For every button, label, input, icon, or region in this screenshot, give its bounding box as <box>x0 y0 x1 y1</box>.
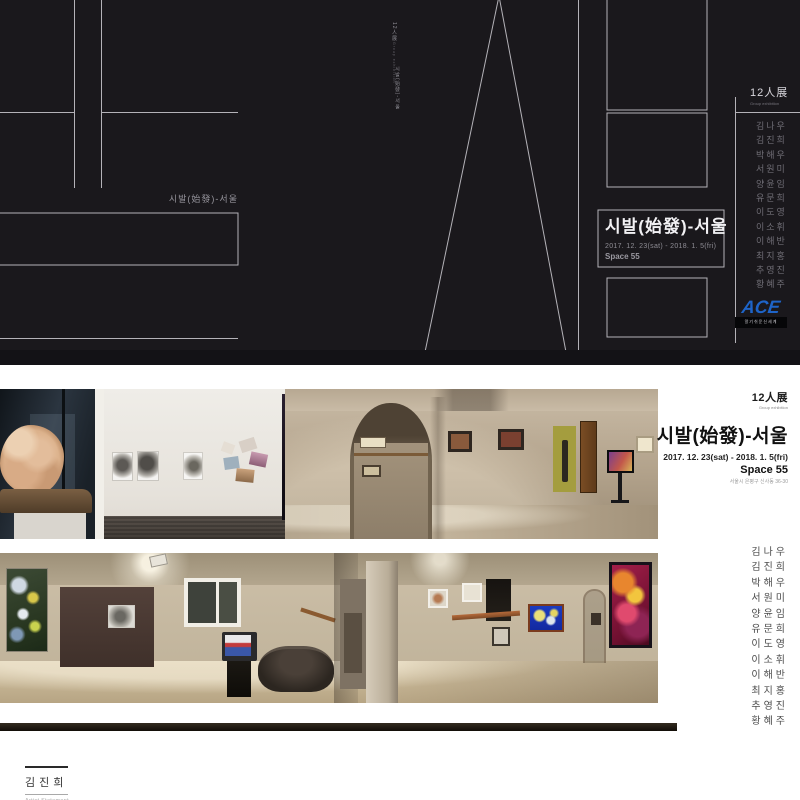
photo-floral-painting-left <box>6 568 48 652</box>
divider-thin <box>25 794 68 795</box>
photo-framed-photo-2 <box>498 429 524 450</box>
poster-vertical-title: 시발(始發)-서울 <box>394 66 401 110</box>
photo-window <box>184 578 241 627</box>
photo-ceiling <box>0 553 658 585</box>
artist-name: 이도영 <box>751 637 788 652</box>
photo-copper-pipe <box>300 608 335 623</box>
photo-red-floral-painting <box>609 562 652 648</box>
poster-bottom-band <box>0 350 800 365</box>
photo-concrete-ceiling <box>285 389 658 411</box>
artist-name-list: 김나우김진희박해우서원미양윤임유문희이도영이소휘이해반최지홍추영진황혜주 <box>751 545 788 730</box>
photo-tv-pedestal <box>227 661 251 697</box>
info-venue: Space 55 <box>638 464 788 476</box>
artist-name: 유문희 <box>751 622 788 637</box>
photo-brown-wall <box>60 587 154 667</box>
ace-logo-text: ACE <box>734 297 789 317</box>
info-date-range: 2017. 12. 23(sat) - 2018. 1. 5(fri) <box>638 452 788 462</box>
photo-sculpture <box>0 425 64 495</box>
artist-name: 양윤임 <box>751 607 788 622</box>
artist-name: 이소휘 <box>751 653 788 668</box>
photo-arch-niche <box>583 589 606 663</box>
photo-corridor-doorway <box>344 613 362 673</box>
gallery-panorama-top[interactable] <box>0 389 658 539</box>
photo-wall-corner-shadow <box>430 397 446 539</box>
info-title: 시발(始發)-서울 <box>638 421 788 448</box>
artist-name: 황혜주 <box>751 714 788 729</box>
photo-blue-painting <box>528 604 564 632</box>
artist-name: 서원미 <box>756 162 787 176</box>
sponsor-logo: ACE 알기쉬운신세계 <box>735 297 787 328</box>
photo-crt-tv <box>222 632 257 661</box>
poster-group-tag: 12人展 Group exhibition <box>750 84 788 106</box>
poster-title: 시발(始發)-서울 <box>605 212 728 237</box>
photo-arch-window <box>360 437 386 448</box>
photo-art-cluster <box>222 439 268 489</box>
artist-name: 추영진 <box>751 699 788 714</box>
exhibition-page: 12人展 Group exhibition 시발(始發)-서울 시발(始發)-서… <box>0 0 800 800</box>
photo-frame-a <box>428 589 448 608</box>
photo-corridor <box>340 579 366 689</box>
artist-name: 박해우 <box>751 576 788 591</box>
photo-monitor <box>607 450 634 473</box>
poster-venue: Space 55 <box>605 252 728 261</box>
photo-monitor-base <box>611 500 629 503</box>
poster-line-art <box>0 0 800 365</box>
artist-name: 김진희 <box>751 560 788 575</box>
artist-name: 이해반 <box>756 234 787 248</box>
info-group-sublabel: Group exhibition <box>638 405 788 410</box>
photo-shard <box>221 441 236 455</box>
photo-niche-frame <box>591 613 601 625</box>
photo-arch-doorway <box>350 403 432 539</box>
exhibition-poster: 12人展 Group exhibition 시발(始發)-서울 시발(始發)-서… <box>0 0 800 365</box>
photo-arch-backwall <box>354 443 428 539</box>
info-address: 서울시 은평구 신사동 36-30 <box>638 478 788 485</box>
exhibition-info-panel: 12人展 Group exhibition 시발(始發)-서울 2017. 12… <box>638 389 788 485</box>
artist-name: 박해우 <box>756 148 787 162</box>
photo-painted-figure <box>562 440 568 482</box>
photo-frame-c <box>492 627 510 646</box>
photo-fur-plinth <box>0 489 92 513</box>
photo-concrete-floor <box>285 505 658 539</box>
poster-diagonal-left <box>425 0 499 352</box>
artist-name: 양윤임 <box>756 177 787 191</box>
photo-monitor-screen <box>609 452 632 471</box>
artist-statement-header: 김진희 Artist Statement <box>25 766 69 800</box>
artist-name: 이도영 <box>756 205 787 219</box>
photo-drawing-2 <box>137 451 159 481</box>
photo-window-pane <box>219 582 237 623</box>
photo-pillar <box>366 561 398 703</box>
photo-carpet-floor <box>104 516 285 539</box>
divider-thick <box>25 766 68 768</box>
artist-name: 이소휘 <box>756 220 787 234</box>
artist-name: 황혜주 <box>756 277 787 291</box>
photo-shard <box>239 437 258 453</box>
artist-name: 서원미 <box>751 591 788 606</box>
footer-artist-name: 김진희 <box>25 774 69 790</box>
photo-yellow-painting <box>553 426 576 492</box>
photo-shard <box>249 451 268 467</box>
poster-left-caption: 시발(始發)-서울 <box>148 192 238 205</box>
artist-name: 김나우 <box>751 545 788 560</box>
artist-name: 최지홍 <box>751 684 788 699</box>
artist-name: 최지홍 <box>756 249 787 263</box>
poster-artist-list: 김나우김진희박해우서원미양윤임유문희이도영이소휘이해반최지홍추영진황혜주 <box>756 119 787 292</box>
artist-name: 김나우 <box>756 119 787 133</box>
photo-arch-shelf <box>354 453 428 456</box>
poster-title-block: 시발(始發)-서울 2017. 12. 23(sat) - 2018. 1. 5… <box>605 212 728 261</box>
group-label-text: 12人展 <box>750 84 788 100</box>
ace-tagline: 알기쉬운신세계 <box>735 317 787 328</box>
photo-shard <box>235 468 254 483</box>
photo-white-pillar <box>95 389 104 539</box>
photo-window-pane <box>188 582 216 623</box>
poster-date-range: 2017. 12. 23(sat) - 2018. 1. 5(fri) <box>605 243 728 250</box>
photo-bathtub <box>258 646 334 692</box>
photo-pedestal <box>14 513 86 539</box>
info-group-label: 12人展 <box>638 389 788 405</box>
photo-frame-b <box>462 583 482 602</box>
photo-drawing-3 <box>183 452 203 480</box>
artist-name: 추영진 <box>756 263 787 277</box>
artist-name: 이해반 <box>751 668 788 683</box>
artist-name: 김진희 <box>756 133 787 147</box>
photo-drawing-1 <box>112 452 133 481</box>
poster-vertical-caption: 12人展 <box>391 22 398 42</box>
photo-framed-photo-1 <box>448 431 472 452</box>
next-panorama-top-edge <box>0 723 677 731</box>
photo-tv-screen <box>225 635 251 656</box>
photo-arch-frame <box>362 465 381 477</box>
photo-wooden-door <box>580 421 597 493</box>
artist-name: 유문희 <box>756 191 787 205</box>
gallery-panorama-bottom[interactable] <box>0 553 658 703</box>
photo-bw-artwork <box>108 605 135 628</box>
poster-diagonal-right <box>499 0 566 352</box>
photo-monitor-stand <box>618 473 622 501</box>
group-sublabel-text: Group exhibition <box>750 101 788 106</box>
